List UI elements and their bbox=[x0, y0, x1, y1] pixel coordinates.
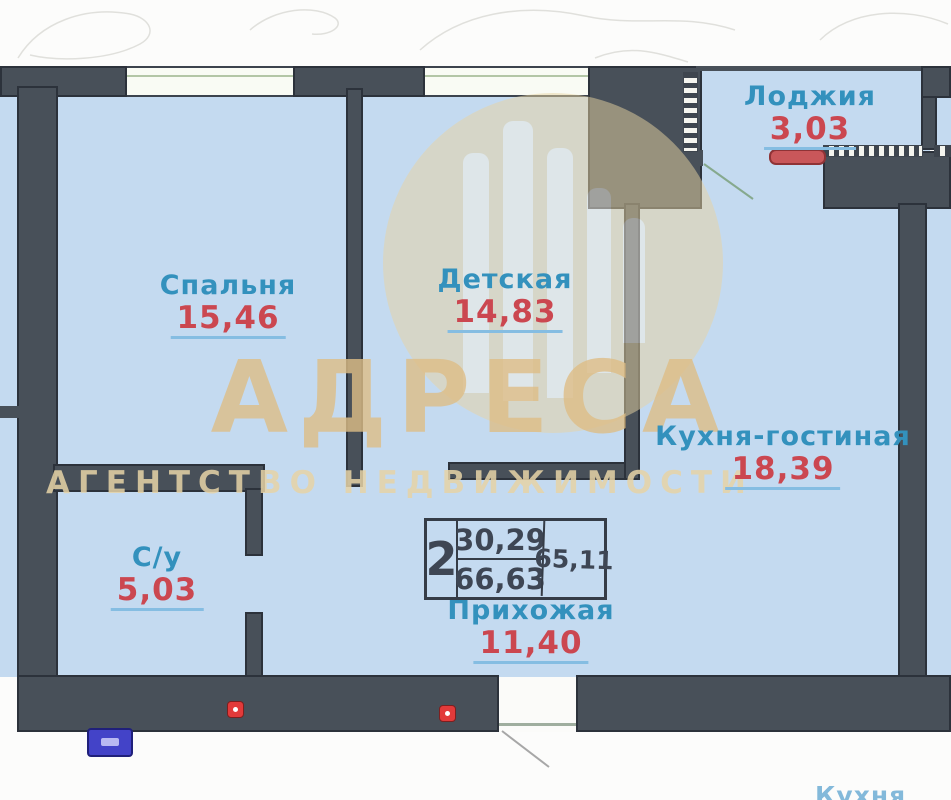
wall-top-right-corner bbox=[921, 66, 951, 98]
wall-bathroom-east-lower bbox=[245, 612, 263, 682]
alarm-dot-right bbox=[439, 705, 456, 722]
radiator-symbol bbox=[769, 149, 826, 165]
wall-left bbox=[17, 86, 58, 712]
wall-bottom-right bbox=[576, 675, 951, 732]
watermark-title: АДРЕСА bbox=[211, 348, 730, 448]
stamp-area-total: 66,63 bbox=[458, 560, 542, 597]
bedroom-label: Спальня 15,46 bbox=[160, 272, 297, 339]
neighbor-left-divider bbox=[0, 406, 20, 418]
floor-plan: Кухня АДРЕСА АГЕНТСТВО НЕДВИЖИМОСТИ Спал… bbox=[0, 0, 951, 800]
wall-under-parapet bbox=[823, 151, 951, 209]
room-name: Детская bbox=[438, 266, 573, 294]
intercom-symbol bbox=[87, 728, 133, 757]
loggia-outer-line bbox=[696, 66, 923, 71]
room-area: 11,40 bbox=[473, 627, 588, 664]
room-name: Лоджия bbox=[744, 83, 876, 111]
stamp-area-living: 30,29 bbox=[458, 521, 542, 560]
loggia-pier bbox=[921, 96, 937, 150]
room-area: 14,83 bbox=[447, 296, 562, 333]
neighbor-parapet-window bbox=[934, 145, 951, 157]
bathroom-label: С/у 5,03 bbox=[111, 544, 204, 611]
entry-threshold-line bbox=[499, 723, 576, 726]
room-area: 18,39 bbox=[725, 453, 840, 490]
entry-door-swing bbox=[502, 731, 549, 767]
neighbor-room-label-fragment: Кухня bbox=[815, 783, 915, 800]
background-sketch bbox=[0, 0, 951, 70]
room-area: 5,03 bbox=[111, 574, 204, 611]
loggia-label: Лоджия 3,03 bbox=[744, 83, 876, 150]
room-name: Кухня-гостиная bbox=[655, 423, 911, 451]
room-name: Спальня bbox=[160, 272, 297, 300]
stamp-area-side: 65,11 bbox=[541, 520, 606, 598]
wall-bottom-left bbox=[17, 675, 499, 732]
bedroom-window bbox=[127, 66, 293, 97]
kitchen-living-label: Кухня-гостиная 18,39 bbox=[655, 423, 911, 490]
intercom-slot bbox=[101, 738, 119, 746]
room-area: 3,03 bbox=[764, 113, 857, 150]
window-glass-line bbox=[425, 75, 588, 77]
hallway-label: Прихожая 11,40 bbox=[447, 597, 614, 664]
window-glass-line bbox=[127, 75, 293, 77]
room-name: С/у bbox=[111, 544, 204, 572]
watermark-subtitle: АГЕНТСТВО НЕДВИЖИМОСТИ bbox=[46, 468, 754, 499]
room-name: Прихожая bbox=[447, 597, 614, 625]
entry-door-opening bbox=[499, 677, 576, 732]
neighbor-right-floor bbox=[923, 205, 951, 677]
children-room-label: Детская 14,83 bbox=[438, 266, 573, 333]
apartment-info-stamp: 2 30,29 66,63 65,11 bbox=[424, 518, 607, 600]
room-area: 15,46 bbox=[170, 302, 285, 339]
alarm-dot-left bbox=[227, 701, 244, 718]
loggia-glazing-west bbox=[683, 72, 698, 152]
logo-building-bar bbox=[623, 218, 645, 343]
